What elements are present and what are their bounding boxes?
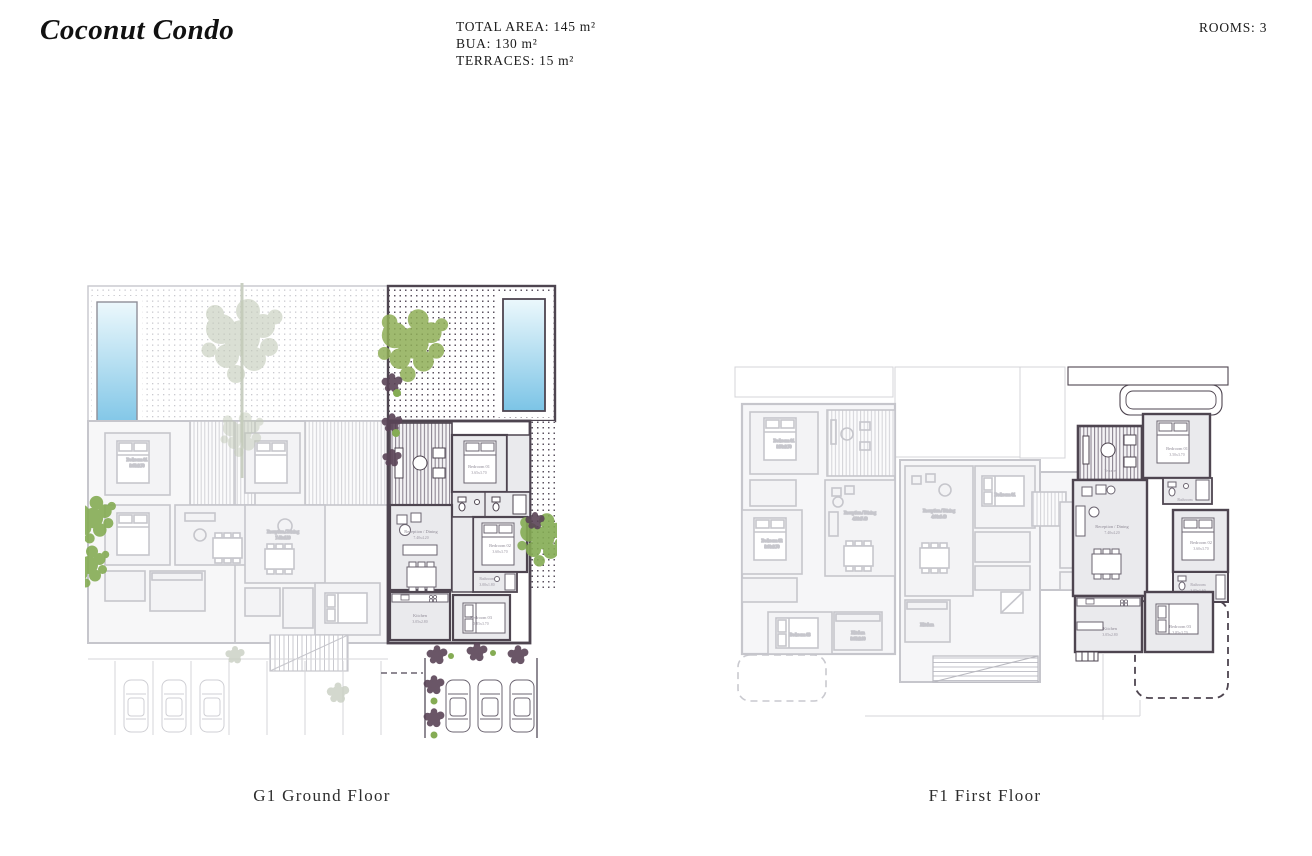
svg-text:7.40x4.20: 7.40x4.20 xyxy=(413,536,428,540)
svg-text:3.65x3.70: 3.65x3.70 xyxy=(471,471,486,475)
svg-text:Bedroom 01: Bedroom 01 xyxy=(127,457,148,462)
svg-text:Bedroom 02: Bedroom 02 xyxy=(489,543,511,548)
svg-text:3.85x3.70: 3.85x3.70 xyxy=(473,622,488,626)
svg-text:Kitchen: Kitchen xyxy=(920,622,934,627)
svg-text:Bedroom 02: Bedroom 02 xyxy=(762,538,783,543)
svg-text:Bedroom 01: Bedroom 01 xyxy=(1166,446,1188,451)
pool-right xyxy=(497,293,551,417)
hallway xyxy=(452,517,473,592)
svg-text:3.50x3.70: 3.50x3.70 xyxy=(1169,453,1184,457)
svg-text:Bedroom 03: Bedroom 03 xyxy=(470,615,493,620)
parking-highlighted xyxy=(381,658,537,738)
total-area-text: TOTAL AREA: 145 m² xyxy=(456,18,596,35)
svg-text:Reception / Dining: Reception / Dining xyxy=(1095,524,1129,529)
svg-text:Kitchen: Kitchen xyxy=(413,613,428,618)
terraces-text: TERRACES: 15 m² xyxy=(456,52,596,69)
svg-text:4.20x7.40: 4.20x7.40 xyxy=(853,517,868,521)
svg-text:Reception / Dining: Reception / Dining xyxy=(844,510,877,515)
first-floor-caption: F1 First Floor xyxy=(929,786,1042,806)
svg-text:Bathroom: Bathroom xyxy=(1190,583,1205,587)
svg-text:3.60x3.70: 3.60x3.70 xyxy=(492,550,507,554)
svg-text:Kitchen: Kitchen xyxy=(851,630,865,635)
highlighted-unit: Bedroom 01 3.65x3.70 xyxy=(388,421,530,643)
svg-text:Bedroom 01: Bedroom 01 xyxy=(774,438,795,443)
entry-steps xyxy=(1076,652,1098,661)
room-kitchen: Kitchen 3.05x2.80 xyxy=(1075,596,1142,652)
room-bedroom-02: Bedroom 02 3.60x3.70 xyxy=(1173,510,1228,572)
svg-text:Bedroom 01: Bedroom 01 xyxy=(468,464,490,469)
svg-text:3.65x3.70: 3.65x3.70 xyxy=(130,464,145,468)
svg-text:3.60x3.70: 3.60x3.70 xyxy=(765,545,780,549)
side-garden-strip xyxy=(530,421,555,591)
ground-floor-caption: G1 Ground Floor xyxy=(253,786,391,806)
hall-bath xyxy=(452,492,530,517)
svg-text:4.00x6.40: 4.00x6.40 xyxy=(932,515,947,519)
ground-floor-plan: Bedroom 01 3.65x3.70 Reception / Dining … xyxy=(85,283,557,745)
svg-text:Reception / Dining: Reception / Dining xyxy=(404,529,438,534)
svg-text:3.00x1.80: 3.00x1.80 xyxy=(479,583,494,587)
closet xyxy=(507,435,530,492)
car xyxy=(478,680,502,732)
svg-text:7.40x4.20: 7.40x4.20 xyxy=(1104,531,1119,535)
room-kitchen: Kitchen 3.05x2.80 xyxy=(390,592,450,640)
svg-text:Terrace: Terrace xyxy=(1104,469,1116,473)
svg-text:3.05x2.80: 3.05x2.80 xyxy=(1102,633,1117,637)
page-title: Coconut Condo xyxy=(40,14,234,47)
svg-text:Bedroom 03: Bedroom 03 xyxy=(1169,624,1192,629)
faded-unit-a: Bedroom 01 3.50x3.70 Reception / Dining … xyxy=(742,404,895,654)
highlighted-unit: Terrace Bedroom 01 3.50x3.70 Bathroom xyxy=(1073,414,1228,661)
room-bathroom: Bathroom 3.00x1.80 xyxy=(473,572,517,592)
room-bedroom-03: Bedroom 03 3.85x3.70 xyxy=(453,595,510,640)
room-bedroom-03: Bedroom 03 3.85x3.70 xyxy=(1145,592,1213,652)
room-bedroom-01: Bedroom 01 3.65x3.70 xyxy=(452,435,507,492)
bua-text: BUA: 130 m² xyxy=(456,35,596,52)
stairs xyxy=(270,635,348,671)
svg-text:Bathroom: Bathroom xyxy=(479,577,494,581)
room-bedroom-01: Bedroom 01 3.50x3.70 xyxy=(1143,414,1210,478)
balcony-outline-faded xyxy=(738,655,826,701)
deck-terrace xyxy=(390,423,452,505)
rooms-count: ROOMS: 3 xyxy=(1199,20,1267,36)
svg-text:Bedroom 01: Bedroom 01 xyxy=(995,492,1016,497)
svg-text:3.85x3.70: 3.85x3.70 xyxy=(1172,631,1187,635)
room-reception-dining: Reception / Dining 7.40x4.20 xyxy=(1073,480,1147,596)
car xyxy=(510,680,534,732)
svg-text:Bedroom 03: Bedroom 03 xyxy=(790,632,811,637)
pool-left xyxy=(92,296,142,434)
svg-text:Bathroom: Bathroom xyxy=(1177,498,1192,502)
room-reception-dining: Reception / Dining 7.40x4.20 xyxy=(390,505,452,592)
first-floor-plan: Bedroom 01 3.50x3.70 Reception / Dining … xyxy=(730,360,1230,735)
svg-text:Reception / Dining: Reception / Dining xyxy=(267,529,300,534)
svg-text:3.05x2.80: 3.05x2.80 xyxy=(851,637,866,641)
svg-text:Bedroom 02: Bedroom 02 xyxy=(1190,540,1212,545)
stairs xyxy=(933,656,1038,682)
svg-text:Reception / Dining: Reception / Dining xyxy=(923,508,956,513)
svg-text:3.50x3.70: 3.50x3.70 xyxy=(777,445,792,449)
area-stats: TOTAL AREA: 145 m² BUA: 130 m² TERRACES:… xyxy=(456,18,596,69)
room-terrace: Terrace xyxy=(1078,426,1142,480)
svg-text:7.40x4.20: 7.40x4.20 xyxy=(276,536,291,540)
floor-plan-sheet: Coconut Condo TOTAL AREA: 145 m² BUA: 13… xyxy=(0,0,1312,856)
car xyxy=(446,680,470,732)
svg-text:3.60x3.70: 3.60x3.70 xyxy=(1193,547,1208,551)
faded-unit-b: Reception / Dining 4.00x6.40 Bedroom 01 … xyxy=(900,460,1040,682)
svg-text:Kitchen: Kitchen xyxy=(1103,626,1118,631)
svg-text:3.05x2.80: 3.05x2.80 xyxy=(412,620,427,624)
small-bathroom: Bathroom xyxy=(1163,478,1212,504)
